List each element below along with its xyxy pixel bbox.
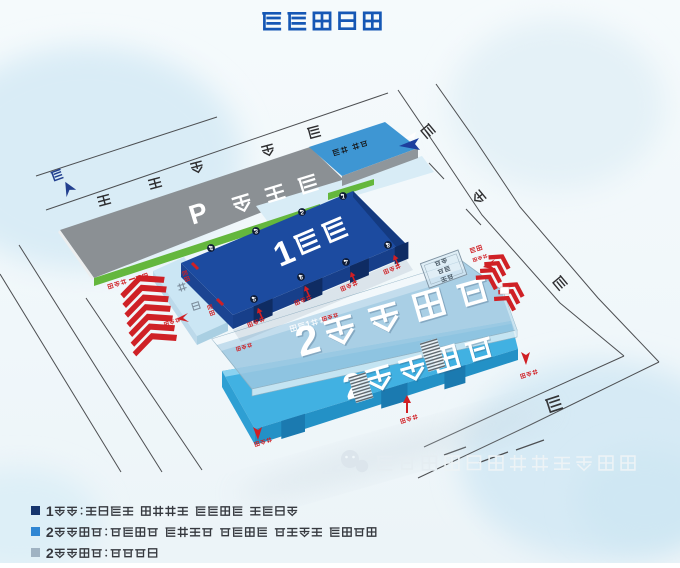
svg-text:2: 2 xyxy=(46,545,54,561)
svg-text:2: 2 xyxy=(46,524,54,540)
svg-text:1: 1 xyxy=(46,503,54,519)
